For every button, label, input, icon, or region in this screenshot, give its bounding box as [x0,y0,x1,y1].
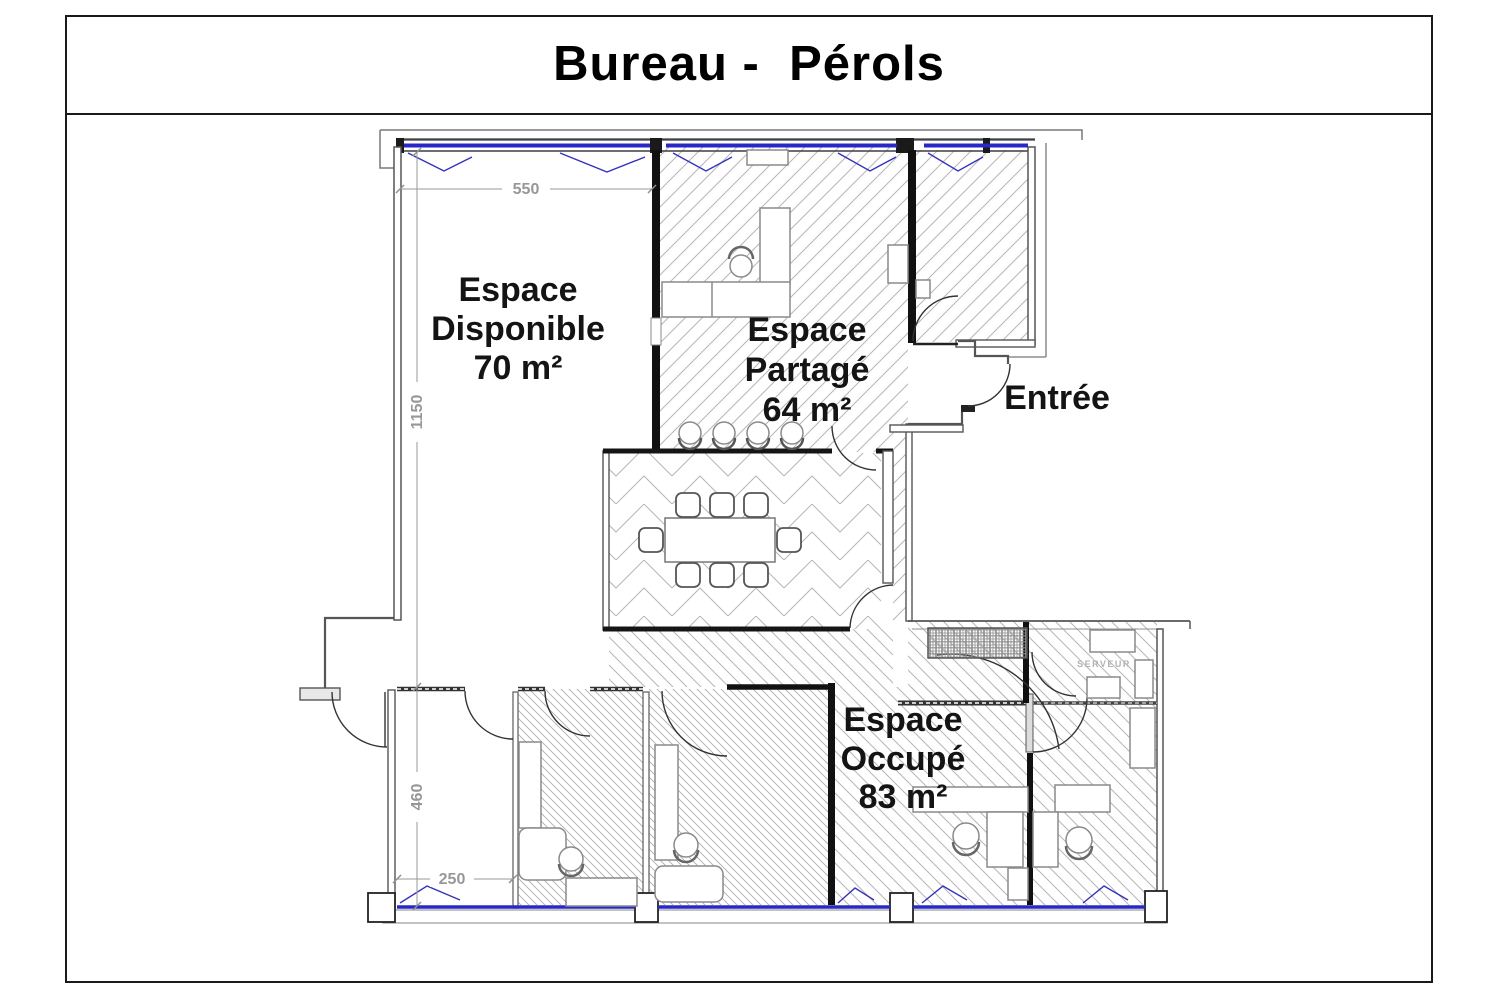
corridor-north-wall [890,425,963,432]
meeting-west-wall [603,451,609,630]
office-divider-3 [828,683,835,905]
occupe-strip-floor [609,629,893,687]
meeting-table [665,518,775,562]
office-chair-icon [559,847,583,876]
label-espace-partage-1: Espace [747,311,866,349]
west-wall-jog [325,618,394,688]
label-serveur: SERVEUR [1077,659,1131,669]
label-espace-disponible-1: Espace [458,271,577,309]
dim-left-height: 1150 [409,395,426,430]
exterior-stub-wall [300,688,340,700]
wall-post [890,893,913,922]
label-espace-partage-2: Partagé [745,351,870,389]
label-espace-occupe-1: Espace [843,701,962,739]
room-top-right-office-floor [916,150,1028,342]
door-office-1 [465,691,513,739]
facade-sill-bottom [383,910,1167,923]
east-wall [1157,629,1163,893]
label-espace-disponible-3: 70 m² [474,349,563,387]
wall-post [635,893,658,922]
partition-partage-office [908,150,916,343]
wall-post [1145,891,1167,922]
office-chair-icon [674,833,698,862]
dim-lower-left-height: 460 [409,784,426,811]
interior-window [651,318,661,345]
office-divider-2 [643,692,649,908]
label-espace-occupe-3: 83 m² [859,778,948,816]
partition-disponible-partage [652,150,660,452]
wall-post [368,893,395,922]
vestibule-west-wall [906,424,912,621]
west-wall-upper [394,147,401,620]
entry-stub-wall [908,412,962,424]
page: Bureau - Pérols [0,0,1500,1000]
dim-top-width: 550 [513,181,540,198]
top-right-office-east-wall [1028,147,1035,345]
label-espace-occupe-2: Occupé [841,740,966,778]
label-entree: Entrée [1004,379,1110,417]
label-espace-partage-3: 64 m² [763,391,852,429]
meeting-east-wall [883,451,893,583]
floor-plan: 550 1150 460 250 Espace Disponible 70 m²… [0,0,1500,1000]
label-espace-disponible-2: Disponible [431,310,605,348]
dim-lower-left-width: 250 [439,871,466,888]
west-wall-lower [388,690,395,906]
